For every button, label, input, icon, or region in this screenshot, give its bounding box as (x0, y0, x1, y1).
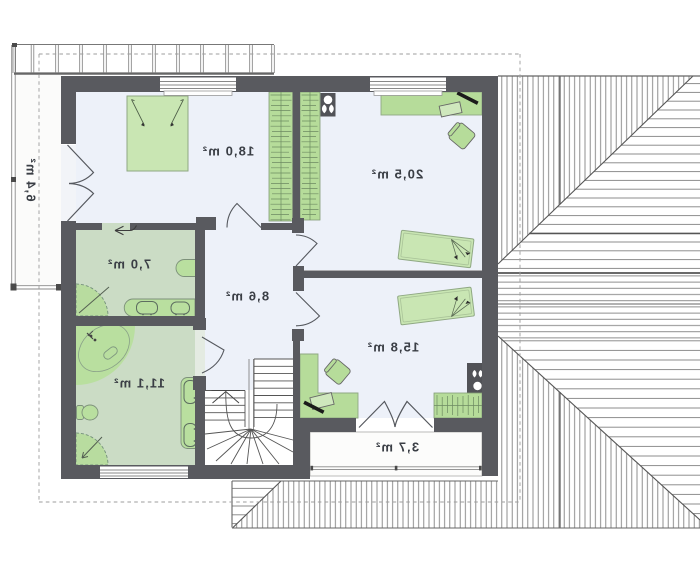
svg-text:11,1 m²: 11,1 m² (113, 376, 165, 391)
svg-text:20,5 m²: 20,5 m² (371, 167, 424, 182)
svg-text:8,6 m²: 8,6 m² (225, 289, 269, 304)
svg-text:18,0 m²: 18,0 m² (202, 144, 255, 159)
svg-text:7,0 m²: 7,0 m² (107, 257, 151, 272)
svg-text:6,4 m²: 6,4 m² (24, 157, 39, 201)
svg-text:3,7 m²: 3,7 m² (375, 440, 419, 455)
svg-text:15,8 m²: 15,8 m² (367, 340, 420, 355)
